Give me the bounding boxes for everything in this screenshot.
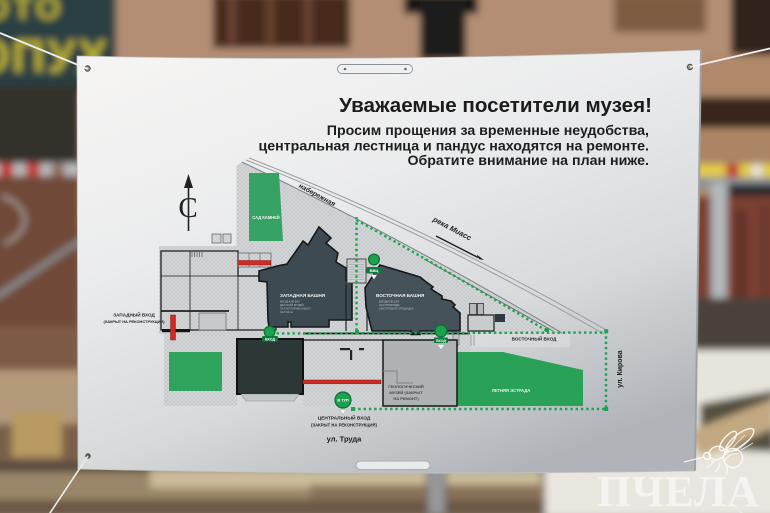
svg-text:ВХОД: ВХОД (436, 339, 446, 343)
svg-text:МУЗЕЙ (ЗАКРЫТ: МУЗЕЙ (ЗАКРЫТ (389, 390, 423, 395)
svg-text:ЗАПАДНАЯ БАШНЯ: ЗАПАДНАЯ БАШНЯ (280, 293, 325, 298)
svg-text:Уважаемые посетители музея!: Уважаемые посетители музея! (339, 94, 652, 117)
svg-text:СМОТРОВАЯ ПЛОЩАДКА: СМОТРОВАЯ ПЛОЩАДКА (379, 307, 414, 311)
svg-text:ПЧЕЛА: ПЧЕЛА (597, 467, 759, 513)
svg-text:В ТУП: В ТУП (337, 399, 348, 403)
svg-text:(ЗАКРЫТ НА РЕКОНСТРУКЦИИ): (ЗАКРЫТ НА РЕКОНСТРУКЦИИ) (103, 319, 165, 324)
svg-text:ЗАПАДНЫЙ ВХОД: ЗАПАДНЫЙ ВХОД (113, 311, 155, 318)
svg-text:Обратите внимание на план ниже: Обратите внимание на план ниже. (407, 153, 649, 169)
svg-text:ГЕОЛОГИЧЕСКИЙ: ГЕОЛОГИЧЕСКИЙ (388, 384, 424, 389)
svg-text:ВХОД: ВХОД (265, 338, 276, 342)
svg-text:ул. Труда: ул. Труда (327, 435, 363, 444)
svg-text:ВОСТОЧНАЯ БАШНЯ: ВОСТОЧНАЯ БАШНЯ (376, 293, 424, 298)
svg-text:САД КАМНЕЙ: САД КАМНЕЙ (252, 215, 280, 220)
svg-text:ВОСТОЧНЫЙ ВХОД: ВОСТОЧНЫЙ ВХОД (512, 335, 557, 342)
svg-text:ОТО: ОТО (0, 0, 65, 26)
svg-text:ЛЕТНЯЯ ЭСТРАДА: ЛЕТНЯЯ ЭСТРАДА (492, 388, 531, 393)
svg-text:ВВЦ: ВВЦ (370, 268, 379, 273)
svg-text:Просим прощения за временные н: Просим прощения за временные неудобства, (327, 123, 649, 139)
svg-text:ЗАЛ 94 кв: ЗАЛ 94 кв (280, 310, 293, 314)
svg-text:ул. Кирова: ул. Кирова (617, 350, 624, 387)
svg-text:НА РЕМОНТ): НА РЕМОНТ) (393, 396, 419, 401)
svg-text:(ЗАКРЫТ НА РЕКОНСТРУКЦИЯ): (ЗАКРЫТ НА РЕКОНСТРУКЦИЯ) (311, 423, 377, 428)
svg-text:С: С (178, 192, 197, 224)
